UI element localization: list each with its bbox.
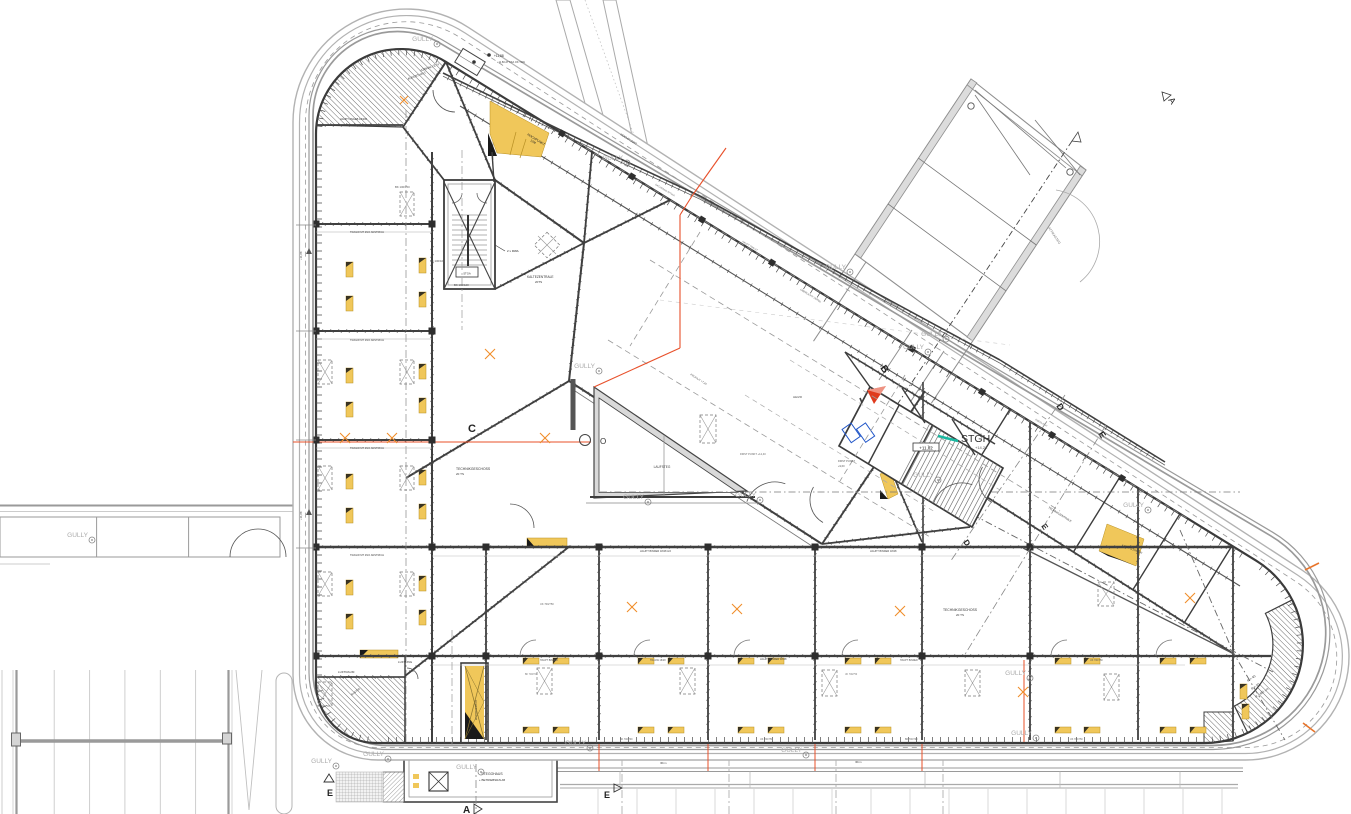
- svg-text:TRAGW 18/28: TRAGW 18/28: [650, 659, 666, 662]
- svg-text:GULLY: GULLY: [456, 764, 477, 771]
- svg-text:UK 700/750: UK 700/750: [540, 602, 554, 606]
- svg-text:GULLY: GULLY: [913, 472, 934, 479]
- svg-text:UNTERFAHRT: UNTERFAHRT: [342, 675, 360, 679]
- svg-text:TECHNIKGESCHOSS: TECHNIKGESCHOSS: [943, 608, 978, 612]
- svg-text:20 TS: 20 TS: [456, 472, 464, 476]
- svg-text:GULLY: GULLY: [412, 36, 433, 43]
- svg-text:UK 700/750: UK 700/750: [760, 738, 773, 741]
- svg-text:HAUPT BINDER: HAUPT BINDER: [900, 659, 918, 662]
- svg-text:C: C: [468, 423, 476, 435]
- svg-text:GULLY: GULLY: [602, 155, 623, 162]
- svg-text:HAUPT BINDER 18/28 HO: HAUPT BINDER 18/28 HO: [640, 549, 671, 553]
- svg-text:LAUFSTEG: LAUFSTEG: [654, 465, 671, 469]
- svg-text:Φbm: Φbm: [660, 761, 667, 765]
- svg-text:GULLY: GULLY: [781, 747, 802, 754]
- svg-text:BK 100/150: BK 100/150: [395, 185, 410, 189]
- svg-text:GULLY: GULLY: [67, 532, 88, 539]
- svg-text:TECHNIKGESCHOSS: TECHNIKGESCHOSS: [456, 467, 491, 471]
- svg-text:TRAGW MT 2NO ANSTRICH: TRAGW MT 2NO ANSTRICH: [350, 553, 384, 557]
- svg-text:UK 700/750: UK 700/750: [1070, 738, 1083, 741]
- svg-text:GULLY: GULLY: [1123, 502, 1144, 509]
- svg-text:+ BETRIEBSRAUM: + BETRIEBSRAUM: [479, 778, 506, 782]
- svg-text:GULLY: GULLY: [311, 758, 332, 765]
- svg-text:HEIZR: HEIZR: [793, 395, 803, 399]
- svg-text:TRAGW MT 2NO ANSTRICH: TRAGW MT 2NO ANSTRICH: [350, 446, 384, 450]
- svg-text:LICHTSCHACHT: LICHTSCHACHT: [474, 700, 478, 720]
- svg-text:GULLY: GULLY: [921, 331, 942, 338]
- svg-text:GULLY: GULLY: [825, 264, 846, 271]
- svg-text:TRAGW MT 2NO ANSTRICH: TRAGW MT 2NO ANSTRICH: [350, 338, 384, 342]
- svg-text:E: E: [604, 790, 610, 800]
- svg-text:HAUPT BINDER: HAUPT BINDER: [540, 659, 558, 662]
- svg-text:+11,82: +11,82: [919, 446, 933, 451]
- svg-text:BK 700/700: BK 700/700: [620, 738, 633, 741]
- svg-text:GULLY: GULLY: [1005, 670, 1026, 677]
- svg-text:GULLY: GULLY: [623, 494, 644, 501]
- svg-text:BK 100/100: BK 100/100: [430, 259, 445, 263]
- svg-text:+11,80 ATTIKA OK TWA: +11,80 ATTIKA OK TWA: [497, 60, 525, 64]
- svg-text:FIRST PUNKT +12,40: FIRST PUNKT +12,40: [740, 452, 766, 456]
- svg-text:2 x RWA: 2 x RWA: [507, 249, 519, 253]
- svg-text:GULLY: GULLY: [735, 492, 756, 499]
- svg-text:STGH: STGH: [961, 433, 990, 445]
- svg-text:UK 700/750: UK 700/750: [845, 674, 858, 676]
- svg-text:E: E: [327, 788, 333, 798]
- svg-text:BK 700/700: BK 700/700: [905, 738, 918, 741]
- svg-text:+9,60: +9,60: [838, 464, 845, 468]
- svg-text:GULLY: GULLY: [1011, 730, 1032, 737]
- svg-text:+11,88: +11,88: [299, 251, 303, 260]
- svg-text:BK 100/120: BK 100/120: [454, 283, 469, 287]
- svg-text:LUFTUNG: LUFTUNG: [398, 660, 413, 664]
- svg-text:HAUPT BINDER 18/28: HAUPT BINDER 18/28: [760, 657, 787, 661]
- svg-text:A: A: [463, 805, 470, 814]
- svg-text:KALTEZENTRALE: KALTEZENTRALE: [527, 275, 554, 279]
- svg-text:O: O: [600, 437, 606, 446]
- svg-text:STGA: STGA: [463, 272, 471, 276]
- svg-text:GULLY: GULLY: [363, 751, 384, 758]
- svg-text:HAUPT BINDER 18/28: HAUPT BINDER 18/28: [870, 549, 897, 553]
- svg-text:GULLY: GULLY: [903, 344, 924, 351]
- svg-text:TRAGW MT 2NO ANSTRICH: TRAGW MT 2NO ANSTRICH: [350, 230, 384, 234]
- svg-text:UK 700/750: UK 700/750: [1090, 659, 1103, 662]
- svg-text:LUFTRAUM: LUFTRAUM: [338, 670, 355, 674]
- svg-text:20 TS: 20 TS: [956, 613, 964, 617]
- svg-text:HAUPT ANGEB 18/200: HAUPT ANGEB 18/200: [340, 117, 368, 121]
- svg-text:GULLY: GULLY: [574, 363, 595, 370]
- svg-text:FIRST PUNKT: FIRST PUNKT: [838, 459, 855, 463]
- svg-text:BK 700/700: BK 700/700: [525, 674, 538, 676]
- svg-text:GULLY: GULLY: [565, 740, 586, 747]
- svg-text:+11,88: +11,88: [494, 54, 504, 58]
- svg-text:ATTIKASTEG: ATTIKASTEG: [1047, 226, 1062, 245]
- svg-text:+11,88: +11,88: [299, 511, 303, 520]
- svg-text:20TS: 20TS: [535, 280, 542, 284]
- svg-text:+14,21: +14,21: [975, 445, 988, 450]
- svg-text:STEGOHAUS: STEGOHAUS: [481, 772, 503, 776]
